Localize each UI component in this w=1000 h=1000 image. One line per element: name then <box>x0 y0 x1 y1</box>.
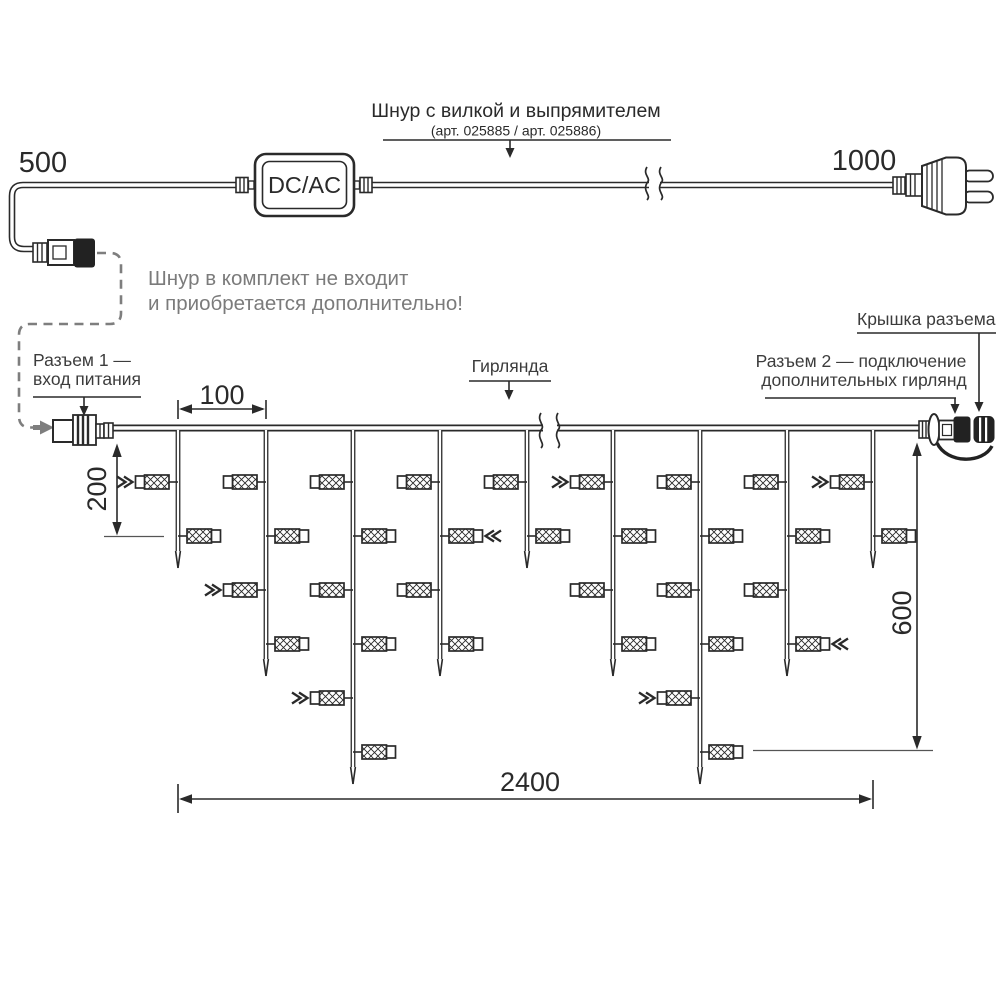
not-included-note-line1: Шнур в комплект не входит <box>148 267 409 290</box>
led-bulb <box>266 637 309 651</box>
direction-marker <box>205 585 221 596</box>
dimension-200 <box>104 444 164 537</box>
power-cable-left <box>12 185 238 249</box>
garland-drop <box>658 430 743 784</box>
direction-marker <box>812 477 828 488</box>
led-bulb <box>311 475 354 489</box>
garland-drop <box>485 430 570 568</box>
connector2-label-line2: дополнительных гирлянд <box>761 370 966 390</box>
garland-drop <box>571 430 656 676</box>
led-bulb <box>440 529 483 543</box>
led-bulb <box>178 529 221 543</box>
diagram-canvas: Шнур с вилкой и выпрямителем (арт. 02588… <box>0 0 1000 1000</box>
led-bulb <box>658 583 701 597</box>
garland-label-pointer <box>469 381 551 400</box>
led-bulb <box>311 691 354 705</box>
cord-label-pointer <box>383 140 671 158</box>
led-bulb <box>613 529 656 543</box>
direction-marker <box>639 693 655 704</box>
led-bulb <box>353 637 396 651</box>
not-included-note-line2: и приобретается дополнительно! <box>148 292 463 315</box>
led-bulb <box>745 475 788 489</box>
dim-cord-right-value: 1000 <box>832 145 897 177</box>
connector1-label-line2: вход питания <box>33 369 141 389</box>
led-bulb <box>440 637 483 651</box>
direction-marker <box>552 477 568 488</box>
dim-width-value: 2400 <box>500 767 560 797</box>
led-bulb <box>787 637 830 651</box>
led-bulb <box>700 529 743 543</box>
led-bulb <box>353 529 396 543</box>
mains-plug <box>893 158 993 215</box>
led-bulb <box>613 637 656 651</box>
garland-drop <box>831 430 916 568</box>
dashed-arrow-icon <box>33 421 54 435</box>
led-bulb <box>311 583 354 597</box>
led-bulb <box>224 475 267 489</box>
garland-label: Гирлянда <box>472 356 549 376</box>
led-bulb <box>527 529 570 543</box>
led-bulb <box>224 583 267 597</box>
cord-label-title: Шнур с вилкой и выпрямителем <box>371 100 660 122</box>
garland-drop <box>136 430 221 568</box>
diagram-page: Шнур с вилкой и выпрямителем (арт. 02588… <box>0 0 1000 1000</box>
led-bulb <box>873 529 916 543</box>
led-bulb <box>571 583 614 597</box>
led-bulb <box>485 475 528 489</box>
led-bulb <box>700 745 743 759</box>
led-bulb <box>787 529 830 543</box>
not-included-dashed-leader <box>19 253 121 435</box>
led-bulb <box>700 637 743 651</box>
led-bulb <box>831 475 874 489</box>
dim-height-value: 600 <box>887 590 917 635</box>
direction-marker <box>292 693 308 704</box>
input-connector <box>53 415 113 445</box>
led-bulb <box>398 475 441 489</box>
connector1-label-line1: Разъем 1 — <box>33 350 131 370</box>
connector2-label-pointer <box>765 398 960 414</box>
power-output-connector <box>33 239 95 268</box>
dim-first-drop-value: 200 <box>82 466 112 511</box>
garland-drop <box>745 430 830 676</box>
cap-tether <box>937 443 992 459</box>
direction-marker <box>833 639 849 650</box>
connector2-label-line1: Разъем 2 — подключение <box>756 351 967 371</box>
led-bulb <box>745 583 788 597</box>
garland-drops <box>117 430 916 784</box>
led-bulb <box>136 475 179 489</box>
direction-marker <box>486 531 502 542</box>
garland-drop <box>398 430 483 676</box>
cap-label: Крышка разъема <box>857 309 996 329</box>
direction-marker <box>117 477 133 488</box>
led-bulb <box>571 475 614 489</box>
dim-spacing-value: 100 <box>199 380 244 410</box>
garland-drop <box>311 430 396 784</box>
led-bulb <box>658 691 701 705</box>
led-bulb <box>658 475 701 489</box>
led-bulb <box>266 529 309 543</box>
connector-cap <box>974 416 995 443</box>
cord-label-subtitle: (арт. 025885 / арт. 025886) <box>431 123 601 139</box>
led-bulb <box>398 583 441 597</box>
connector1-label-pointer <box>33 397 141 416</box>
garland-assembly <box>53 413 995 784</box>
dim-cord-left-value: 500 <box>19 147 67 179</box>
garland-drop <box>224 430 309 676</box>
converter-label: DC/AC <box>268 172 341 198</box>
led-bulb <box>353 745 396 759</box>
